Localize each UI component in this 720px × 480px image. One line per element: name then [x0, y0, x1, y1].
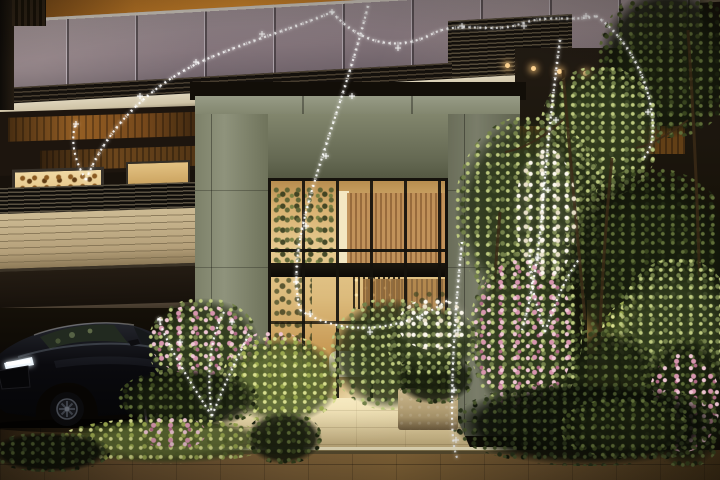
sparkle-stars	[73, 9, 651, 443]
sparkle-garland-overlay	[0, 0, 720, 480]
rendering-canvas	[0, 0, 720, 480]
